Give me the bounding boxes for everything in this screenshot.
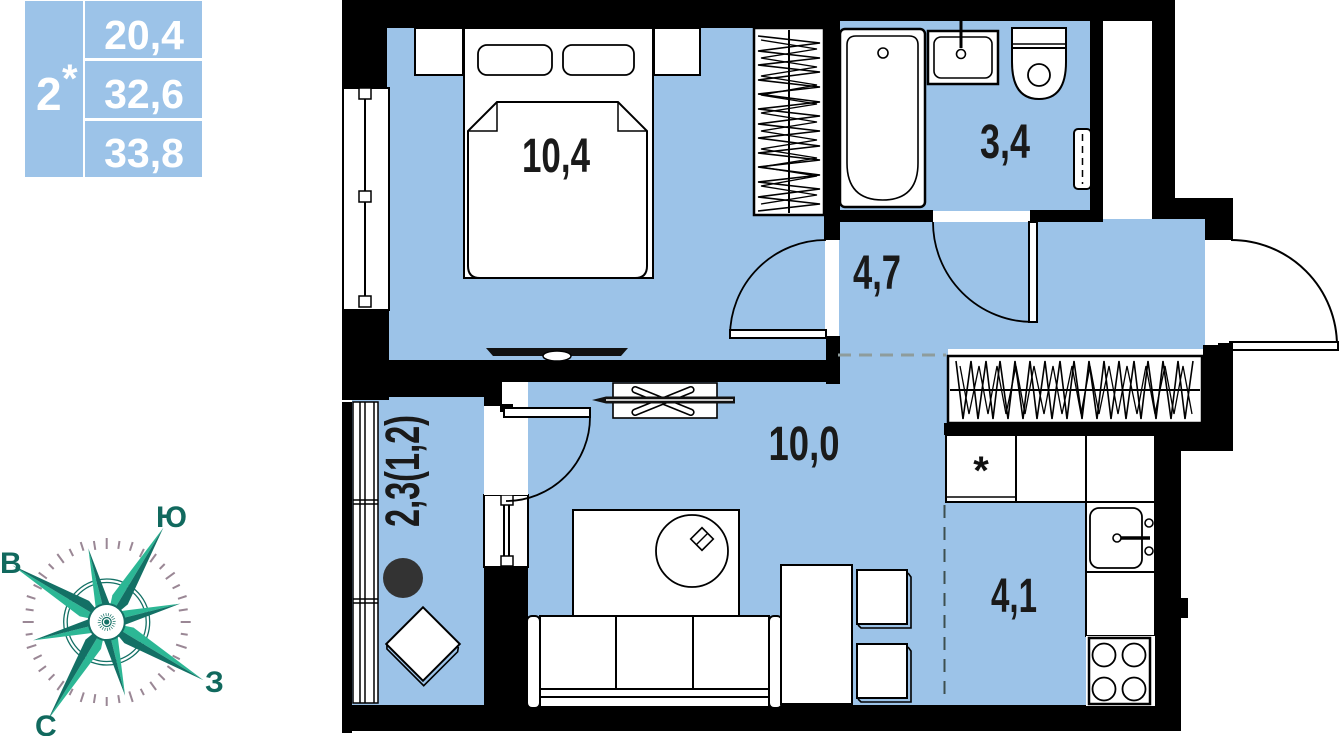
svg-text:2,3(1,2): 2,3(1,2): [377, 415, 430, 527]
svg-text:33,8: 33,8: [104, 130, 184, 176]
svg-text:10,4: 10,4: [522, 130, 590, 183]
svg-text:4,7: 4,7: [853, 247, 901, 300]
svg-text:4,1: 4,1: [991, 570, 1037, 623]
svg-text:З: З: [205, 666, 224, 699]
svg-text:10,0: 10,0: [769, 418, 840, 471]
svg-text:20,4: 20,4: [104, 12, 184, 58]
svg-text:*: *: [973, 449, 989, 493]
svg-text:3,4: 3,4: [980, 116, 1030, 169]
svg-text:*: *: [62, 57, 78, 101]
svg-text:В: В: [0, 547, 22, 580]
svg-text:Ю: Ю: [156, 501, 187, 534]
svg-text:С: С: [35, 710, 57, 736]
svg-text:2: 2: [36, 68, 62, 120]
svg-text:32,6: 32,6: [104, 71, 184, 117]
